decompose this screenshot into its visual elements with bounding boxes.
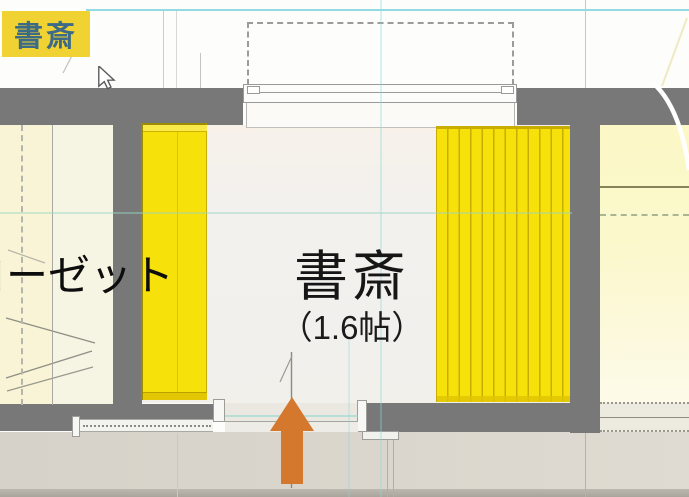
room-label-badge: 書斎 bbox=[2, 11, 90, 57]
mouse-cursor-icon bbox=[97, 66, 117, 92]
room-label-badge-text: 書斎 bbox=[14, 13, 78, 55]
floor-plan-canvas: ローゼット 書斎 （1.6帖） 書斎 bbox=[0, 0, 689, 497]
